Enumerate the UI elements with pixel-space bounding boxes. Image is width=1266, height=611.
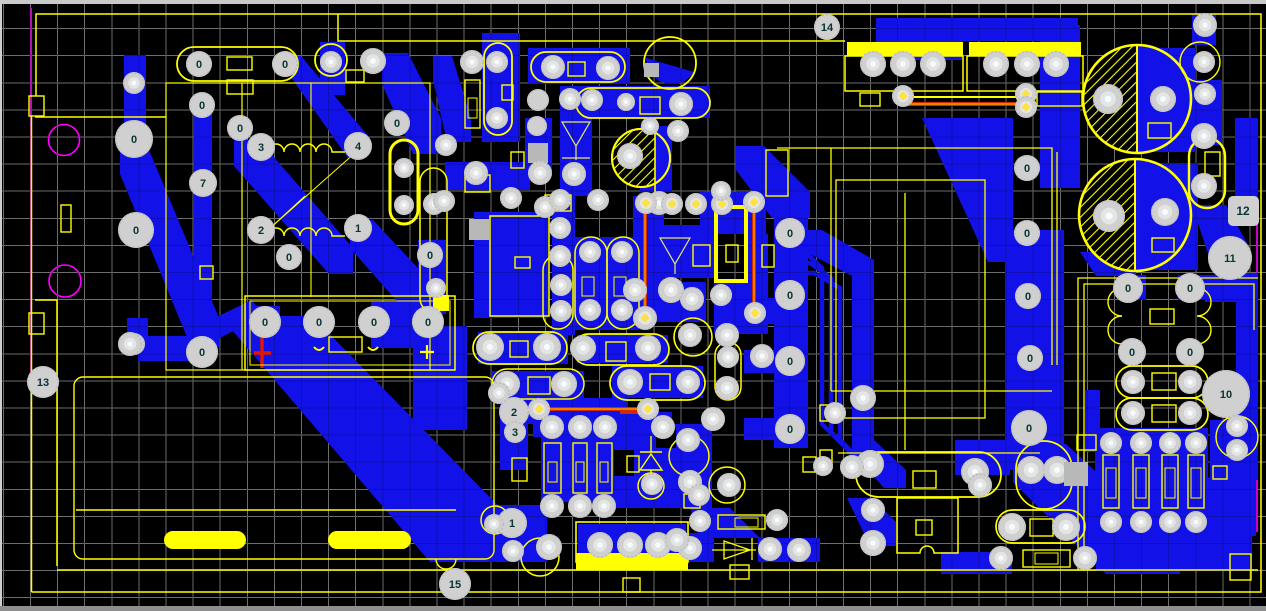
svg-text:0: 0	[425, 317, 431, 329]
svg-text:2: 2	[258, 225, 264, 237]
svg-text:10: 10	[1220, 389, 1232, 401]
svg-text:0: 0	[1025, 291, 1031, 303]
svg-text:1: 1	[509, 518, 515, 530]
svg-text:14: 14	[821, 22, 834, 34]
svg-text:0: 0	[199, 347, 205, 359]
svg-text:0: 0	[199, 100, 205, 112]
svg-text:0: 0	[371, 317, 377, 329]
svg-text:0: 0	[787, 424, 793, 436]
svg-text:11: 11	[1224, 253, 1236, 265]
svg-text:0: 0	[1026, 423, 1032, 435]
svg-text:7: 7	[200, 178, 206, 190]
svg-text:0: 0	[787, 356, 793, 368]
svg-text:0: 0	[1125, 283, 1131, 295]
svg-text:0: 0	[316, 317, 322, 329]
svg-text:0: 0	[427, 250, 433, 262]
svg-text:0: 0	[131, 134, 137, 146]
svg-text:0: 0	[196, 59, 202, 71]
svg-text:0: 0	[237, 123, 243, 135]
svg-text:0: 0	[282, 59, 288, 71]
svg-text:0: 0	[787, 228, 793, 240]
svg-text:0: 0	[1187, 347, 1193, 359]
svg-text:0: 0	[1024, 163, 1030, 175]
svg-text:0: 0	[286, 252, 292, 264]
svg-text:12: 12	[1236, 204, 1250, 218]
svg-text:0: 0	[133, 225, 139, 237]
svg-text:4: 4	[355, 141, 362, 153]
svg-text:0: 0	[1024, 228, 1030, 240]
svg-text:15: 15	[449, 579, 461, 591]
svg-text:1: 1	[355, 223, 361, 235]
svg-text:0: 0	[1027, 353, 1033, 365]
svg-text:0: 0	[394, 118, 400, 130]
svg-text:3: 3	[512, 427, 518, 439]
svg-text:0: 0	[787, 290, 793, 302]
svg-text:2: 2	[511, 407, 517, 419]
svg-text:0: 0	[1129, 347, 1135, 359]
svg-text:13: 13	[37, 377, 49, 389]
svg-text:0: 0	[262, 317, 268, 329]
svg-text:3: 3	[258, 142, 264, 154]
svg-text:0: 0	[1187, 283, 1193, 295]
